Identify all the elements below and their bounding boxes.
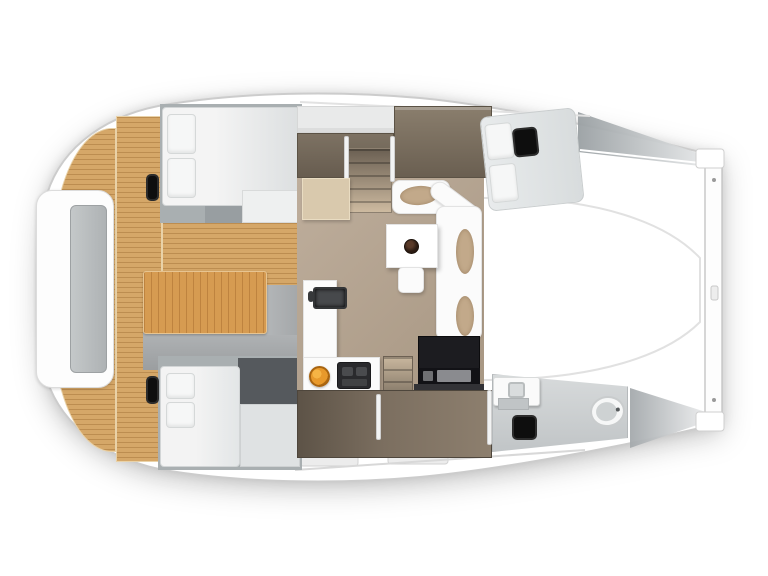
crossbeam-cap-bottom (696, 412, 724, 431)
cooktop-burner-1 (342, 367, 353, 376)
electronics-panel (418, 368, 480, 384)
transom-bench-pad (70, 205, 107, 373)
port-aft-cabin-floor (205, 206, 242, 223)
galley-sink (313, 287, 347, 309)
starboard-aft-pillow-1 (166, 373, 195, 399)
electronics-display (437, 370, 471, 382)
cooktop-grate (342, 379, 367, 386)
port-forward-berth (479, 107, 584, 212)
cooktop-burner-2 (356, 367, 367, 376)
starboard-aft-pillow-2 (166, 402, 195, 428)
cockpit-table (143, 271, 267, 334)
starboard-aft-berth-foot (240, 404, 300, 467)
fruit-bowl (309, 366, 330, 387)
port-stairs-post-left (344, 136, 349, 182)
port-aft-berth-step (242, 190, 302, 223)
electronics-switch (423, 371, 433, 381)
crossbeam-center-fitting (711, 286, 718, 300)
deck-hatch-starboard (146, 376, 159, 404)
dinette-stool (398, 267, 424, 293)
port-stairs (348, 148, 392, 213)
port-overhead-lockers (297, 106, 396, 133)
vanity-sink (508, 382, 525, 398)
crossbeam-bolt-bottom (712, 398, 716, 402)
cabin-hatch-port-forward (512, 126, 540, 157)
toilet-hinge (616, 407, 621, 412)
starboard-joinery-post (376, 394, 381, 440)
settee-cushion-side-2 (456, 296, 474, 336)
catamaran-floor-plan (0, 0, 768, 576)
port-stairs-post-right (390, 136, 395, 182)
deck-hatch-port (146, 174, 159, 201)
galley-faucet (308, 291, 314, 302)
electronics-cabinet (418, 336, 480, 370)
port-aft-pillow-2 (167, 158, 196, 198)
port-forward-pillow-1 (484, 122, 515, 161)
port-aft-pillow-1 (167, 114, 196, 154)
crossbeam-cap-top (696, 149, 724, 168)
settee-cushion-side-1 (456, 229, 474, 274)
starboard-aft-cabin-bulkhead (238, 358, 302, 404)
head-bulkhead-post (487, 390, 492, 445)
toilet-seat (595, 401, 618, 423)
port-forward-pillow-2 (488, 163, 519, 204)
table-bowl (404, 239, 419, 254)
crossbeam-bolt-top (712, 178, 716, 182)
head-floor-hatch (512, 415, 537, 440)
starboard-wardrobe-joinery (297, 390, 492, 458)
port-stairs-landing (302, 178, 350, 220)
port-wardrobe-tall (394, 106, 492, 178)
vanity-shelf (498, 398, 529, 410)
cooktop (337, 362, 371, 389)
